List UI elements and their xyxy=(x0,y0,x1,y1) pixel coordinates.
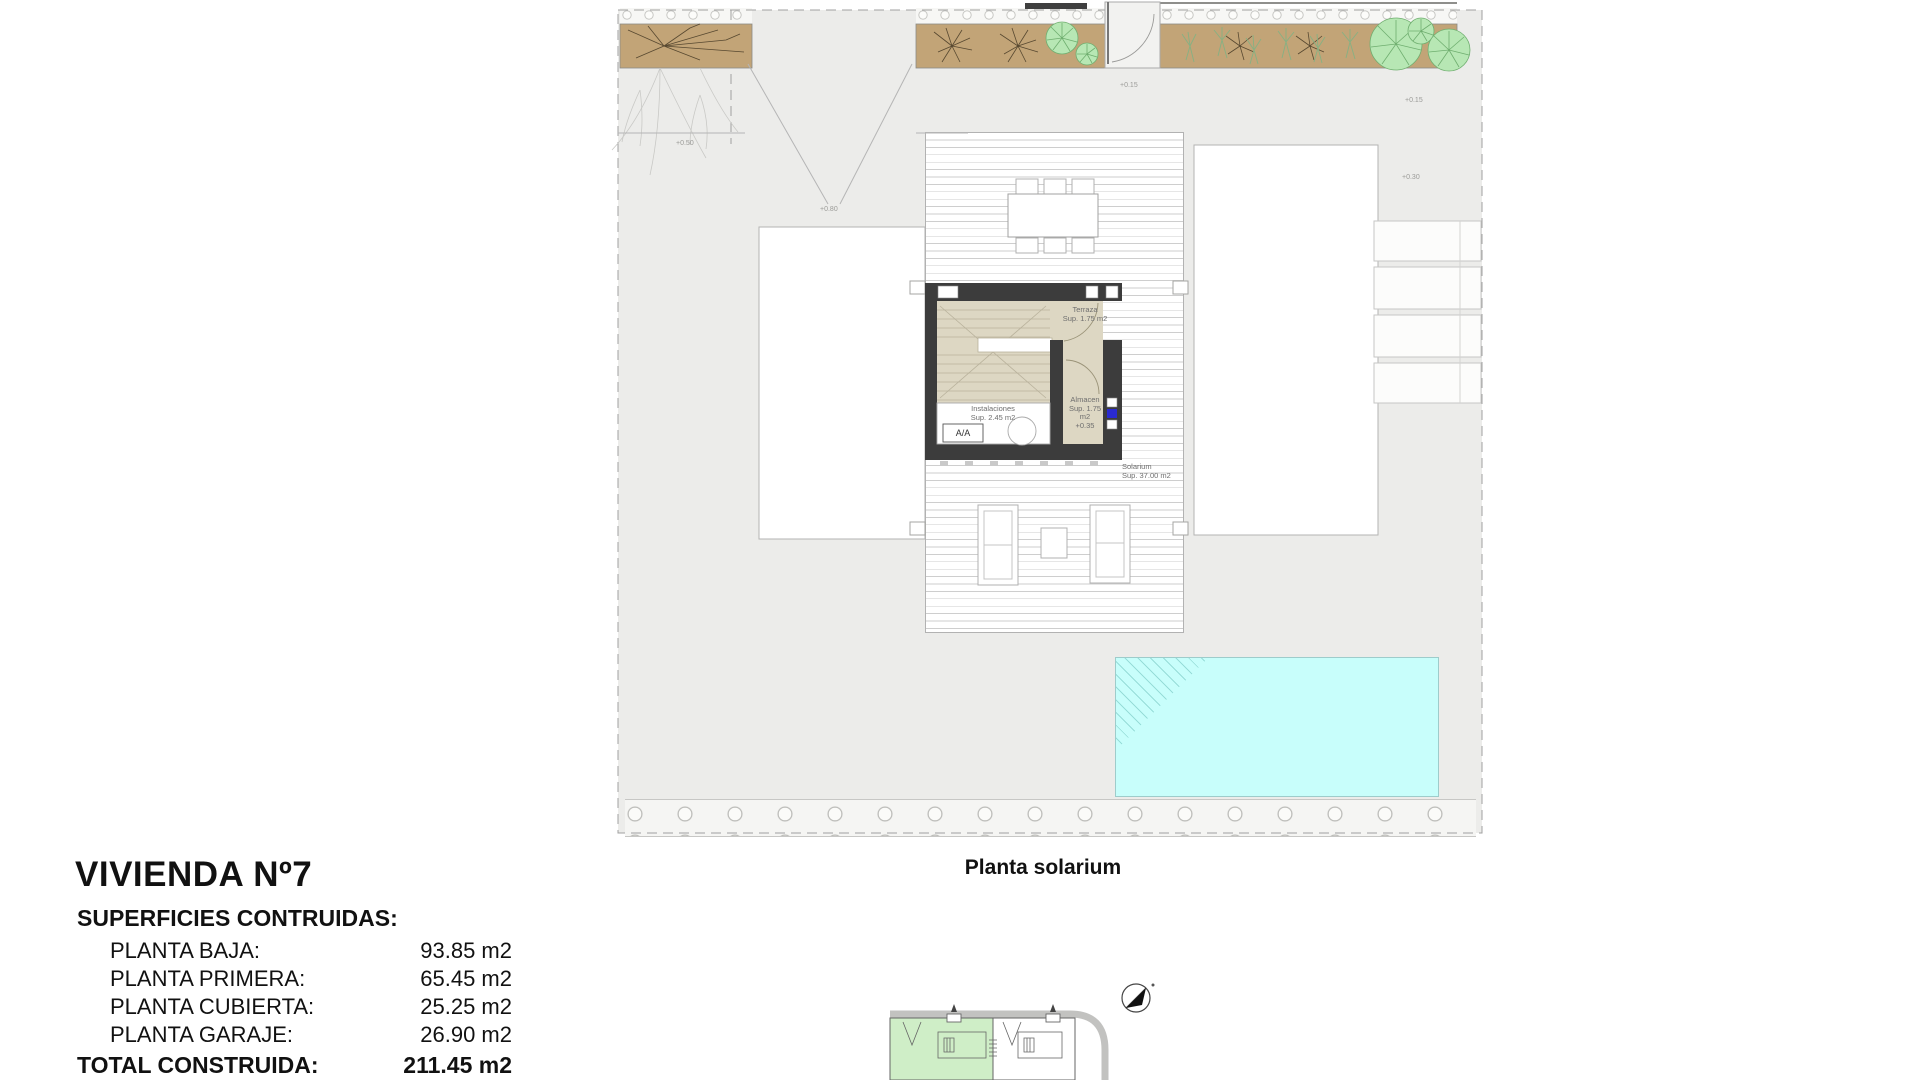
gravel-strip-right xyxy=(1160,8,1457,25)
surfaces-subtitle: SUPERFICIES CONTRUIDAS: xyxy=(77,905,398,932)
terraza-area: Sup. 1.75 m2 xyxy=(1056,315,1114,324)
surface-row: PLANTA PRIMERA: 65.45 m2 xyxy=(110,966,512,994)
surfaces-table: PLANTA BAJA: 93.85 m2 PLANTA PRIMERA: 65… xyxy=(110,938,512,1050)
level-marker: +0.15 xyxy=(1120,82,1138,89)
rubble-band xyxy=(625,799,1476,837)
solarium-deck xyxy=(925,132,1184,633)
surface-label: PLANTA BAJA: xyxy=(110,938,260,966)
gravel-strip-left xyxy=(620,8,752,25)
total-value: 211.45 m2 xyxy=(403,1052,512,1079)
solarium-label: Solarium Sup. 37.00 m2 xyxy=(1122,463,1192,480)
north-compass-icon xyxy=(1122,984,1155,1013)
surface-label: PLANTA PRIMERA: xyxy=(110,966,305,994)
level-marker: +0.30 xyxy=(1402,174,1420,181)
surface-value: 26.90 m2 xyxy=(420,1022,512,1050)
almacen-level: +0.35 xyxy=(1064,422,1106,431)
solarium-area: Sup. 37.00 m2 xyxy=(1122,472,1192,481)
dwelling-title: VIVIENDA Nº7 xyxy=(75,855,312,895)
surface-label: PLANTA GARAJE: xyxy=(110,1022,293,1050)
aa-unit-label: A/A xyxy=(943,424,983,442)
level-marker: +0.15 xyxy=(1405,97,1423,104)
surface-row: PLANTA GARAJE: 26.90 m2 xyxy=(110,1022,512,1050)
total-label: TOTAL CONSTRUIDA: xyxy=(77,1052,319,1079)
terraza-label: Terraza Sup. 1.75 m2 xyxy=(1056,306,1114,323)
surface-value: 93.85 m2 xyxy=(420,938,512,966)
site-miniplan xyxy=(890,1004,1105,1080)
surface-row: PLANTA CUBIERTA: 25.25 m2 xyxy=(110,994,512,1022)
surface-value: 65.45 m2 xyxy=(420,966,512,994)
drawing-sheet: Terraza Sup. 1.75 m2 Instalaciones Sup. … xyxy=(0,0,1920,1080)
total-row: TOTAL CONSTRUIDA: 211.45 m2 xyxy=(77,1052,512,1079)
surface-label: PLANTA CUBIERTA: xyxy=(110,994,314,1022)
plan-caption: Planta solarium xyxy=(933,856,1153,880)
surface-value: 25.25 m2 xyxy=(420,994,512,1022)
gravel-strip-center xyxy=(916,8,1105,25)
almacen-label: Almacen Sup. 1.75 m2 +0.35 xyxy=(1064,396,1106,430)
level-marker: +0.80 xyxy=(820,206,838,213)
instalaciones-area: Sup. 2.45 m2 xyxy=(938,414,1048,423)
level-marker: +0.50 xyxy=(676,140,694,147)
almacen-area: Sup. 1.75 m2 xyxy=(1064,405,1106,422)
surface-row: PLANTA BAJA: 93.85 m2 xyxy=(110,938,512,966)
instalaciones-label: Instalaciones Sup. 2.45 m2 xyxy=(938,405,1048,422)
